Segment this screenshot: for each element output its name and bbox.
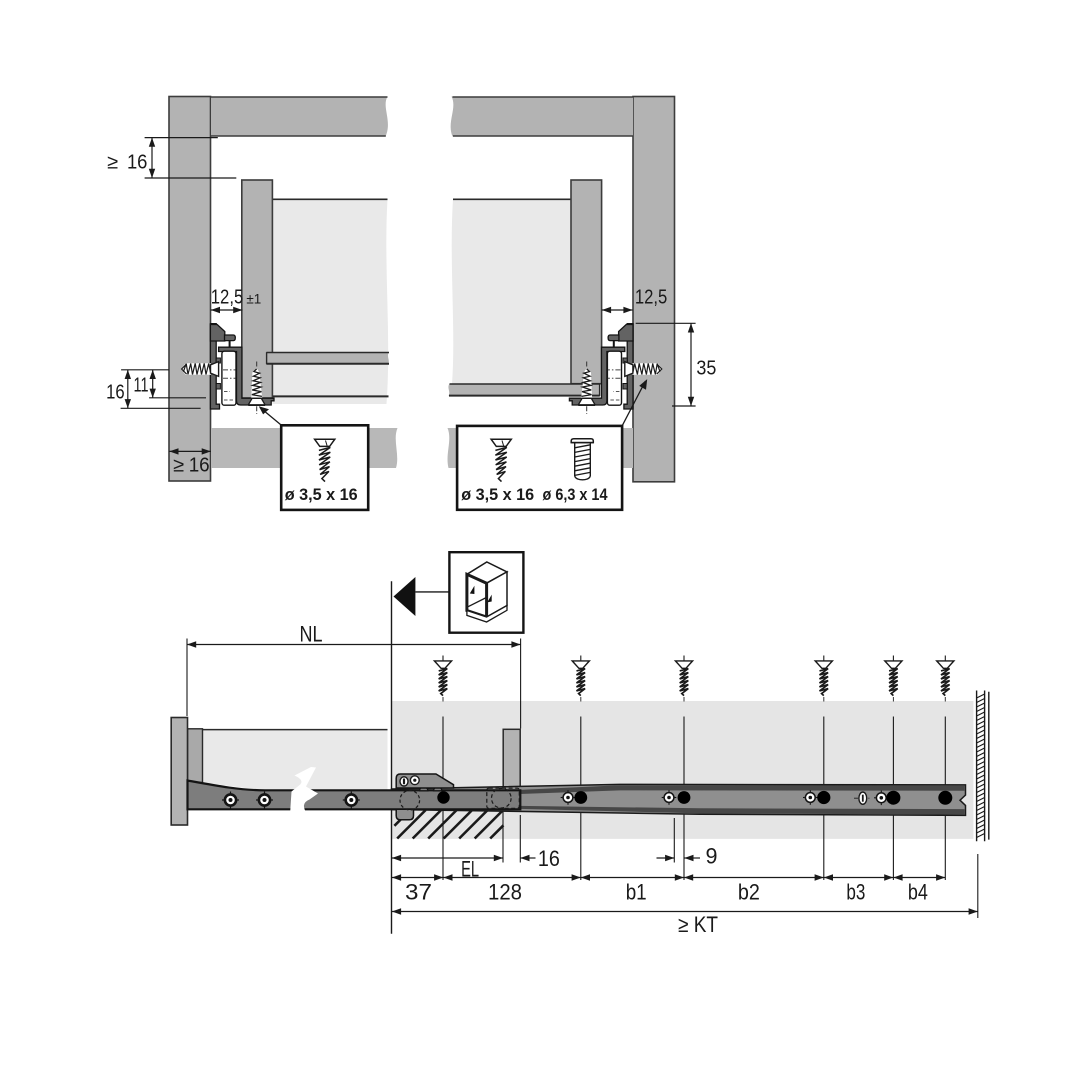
svg-text:NL: NL [300,622,323,647]
svg-text:35: 35 [696,358,716,380]
svg-text:128: 128 [488,880,522,905]
svg-text:≥ KT: ≥ KT [678,912,718,937]
svg-text:11: 11 [134,375,149,397]
svg-text:ø 3,5 x 16: ø 3,5 x 16 [461,485,534,504]
svg-text:9: 9 [706,844,718,869]
svg-text:b1: b1 [626,880,647,905]
svg-text:12,5: 12,5 [211,287,244,309]
svg-text:≥: ≥ [173,455,184,477]
svg-text:16: 16 [189,455,210,477]
svg-text:≥: ≥ [107,151,118,173]
svg-text:ø 3,5 x 16: ø 3,5 x 16 [285,485,358,504]
svg-text:ø 6,3 x 14: ø 6,3 x 14 [543,485,608,504]
svg-text:16: 16 [127,151,148,173]
svg-text:12,5: 12,5 [635,287,668,309]
svg-text:b4: b4 [908,880,928,905]
svg-text:±1: ±1 [246,292,261,307]
svg-text:b2: b2 [738,880,760,905]
svg-text:37: 37 [405,880,432,905]
svg-text:16: 16 [106,382,125,404]
svg-text:b3: b3 [846,880,865,905]
svg-text:16: 16 [538,846,560,871]
